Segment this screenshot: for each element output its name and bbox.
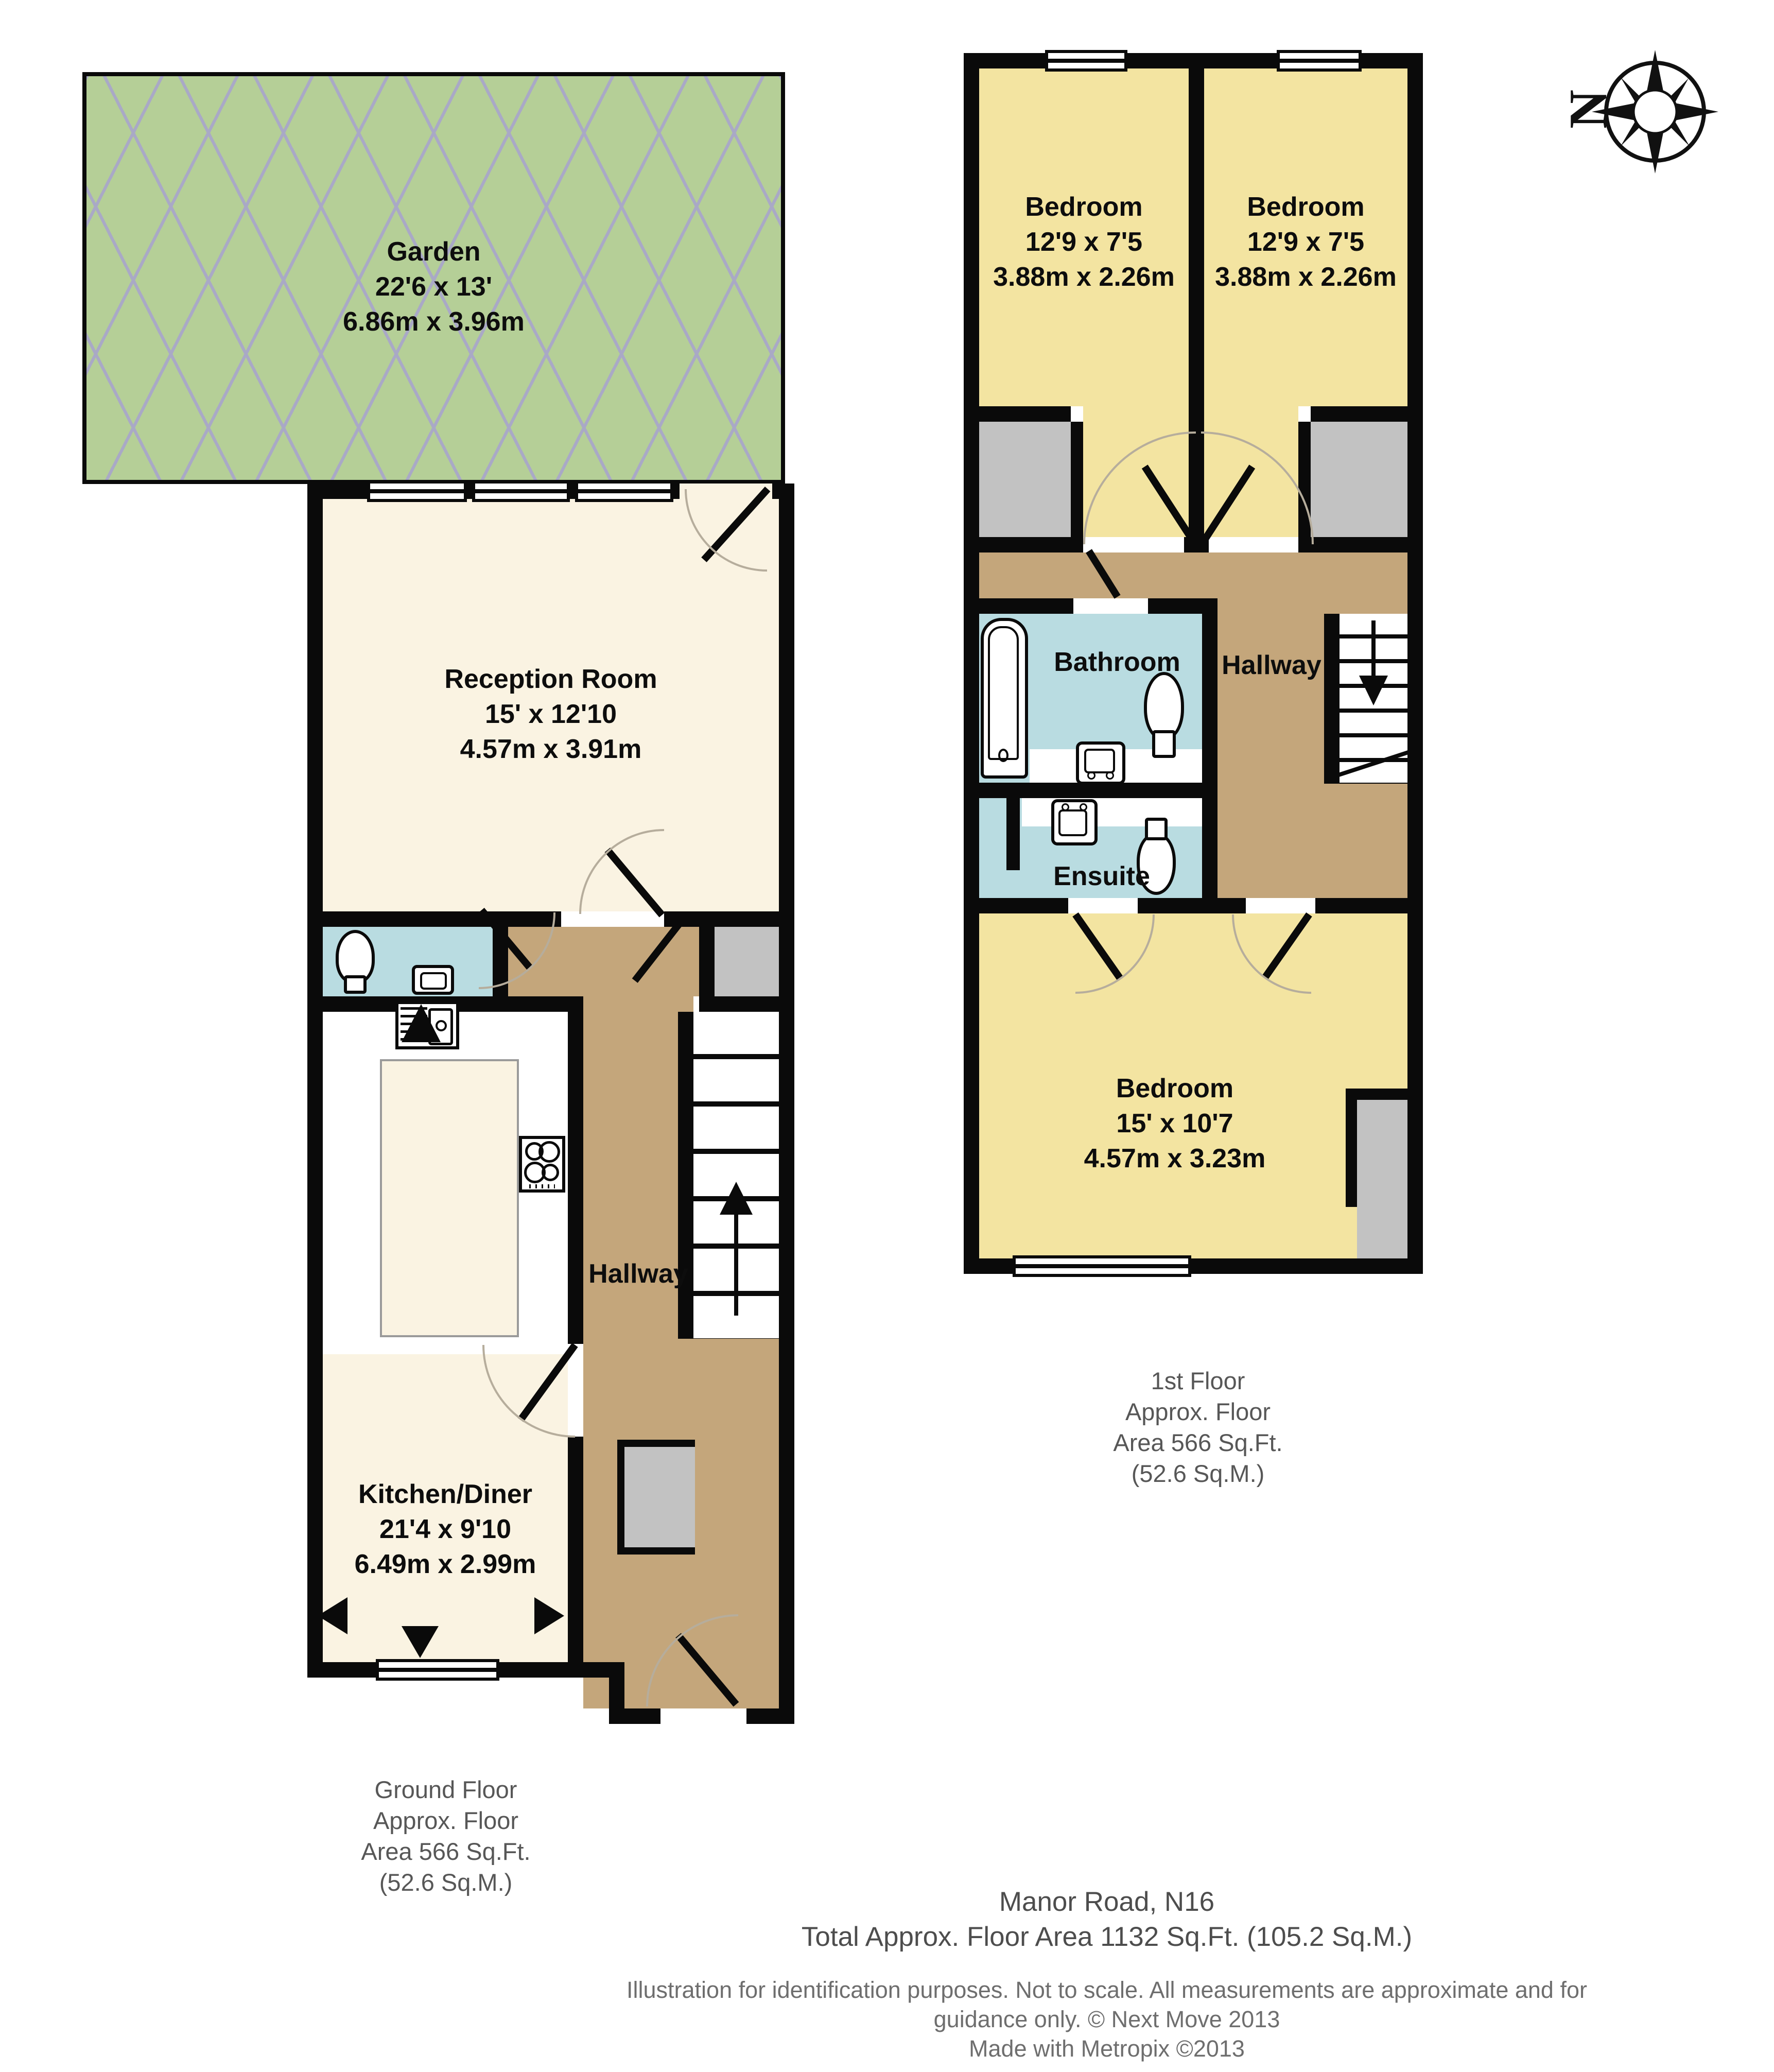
caption-line: 1st Floor — [992, 1366, 1404, 1396]
room-dims-imperial: 21'4 x 9'10 — [323, 1512, 568, 1547]
wall — [746, 1708, 794, 1724]
wall — [307, 1662, 376, 1678]
wall — [568, 1437, 583, 1662]
closet-entry-wall-left — [617, 1440, 624, 1555]
caption-line: Approx. Floor — [240, 1805, 652, 1836]
window — [472, 480, 570, 502]
hallway-first-label: Hallway — [1212, 648, 1331, 683]
bedroom-left-label: Bedroom 12'9 x 7'5 3.88m x 2.26m — [979, 189, 1189, 295]
wall — [1071, 422, 1083, 537]
room-name: Reception Room — [323, 662, 779, 697]
disclaimer-line: guidance only. © Next Move 2013 — [592, 2005, 1622, 2034]
hallway-first-mid — [1218, 598, 1324, 898]
room-name: Hallway — [583, 1256, 693, 1291]
stove-icon — [519, 1136, 565, 1193]
room-dims-imperial: 22'6 x 13' — [82, 269, 785, 304]
room-dims-imperial: 15' x 10'7 — [979, 1106, 1370, 1141]
stairs-up-arrow-icon — [720, 1182, 753, 1215]
wall — [1298, 537, 1407, 552]
kitchen-island — [380, 1059, 519, 1337]
caption-line: Ground Floor — [240, 1774, 652, 1805]
stairs-down-arrow-icon — [1359, 676, 1388, 705]
room-name: Garden — [82, 234, 785, 269]
window — [1045, 50, 1127, 72]
disclaimer-line: Made with Metropix ©2013 — [592, 2034, 1622, 2063]
bedroom-main-label: Bedroom 15' x 10'7 4.57m x 3.23m — [979, 1071, 1370, 1176]
caption-line: (52.6 Sq.M.) — [240, 1867, 652, 1898]
floorplan-canvas: Garden 22'6 x 13' 6.86m x 3.96m — [0, 0, 1774, 2072]
wall — [964, 598, 1073, 614]
wall — [979, 406, 1071, 422]
stairs-ground-arrow-stem — [734, 1213, 738, 1316]
closet-upper-right — [1311, 422, 1407, 537]
wall — [1202, 598, 1218, 798]
wall — [609, 1708, 660, 1724]
closet-entry-wall-top — [617, 1440, 695, 1447]
wall — [1407, 53, 1423, 1274]
wall — [699, 996, 779, 1012]
room-dims-metric: 4.57m x 3.23m — [979, 1141, 1370, 1176]
hallway-first-lower — [1324, 784, 1407, 898]
caption-line: Area 566 Sq.Ft. — [240, 1836, 652, 1867]
closet-top-right — [715, 927, 779, 996]
hallway-first-upper — [979, 552, 1407, 598]
opening-arrow-right-icon — [534, 1597, 564, 1634]
room-name: Bedroom — [979, 189, 1189, 225]
toilet-base — [344, 975, 367, 994]
room-dims-imperial: 12'9 x 7'5 — [1204, 225, 1407, 260]
reception-room-label: Reception Room 15' x 12'10 4.57m x 3.91m — [323, 662, 779, 767]
bathroom-label: Bathroom — [1032, 645, 1202, 680]
room-name: Ensuite — [1006, 859, 1197, 894]
wall — [568, 996, 583, 1344]
window-arrow-down-icon — [402, 1626, 439, 1658]
room-dims-metric: 3.88m x 2.26m — [1204, 260, 1407, 295]
room-name: Kitchen/Diner — [323, 1477, 568, 1512]
room-dims-imperial: 15' x 12'10 — [323, 697, 779, 732]
window — [575, 480, 673, 502]
room-name: Bedroom — [1204, 189, 1407, 225]
toilet-base — [1145, 818, 1168, 840]
kitchen-label: Kitchen/Diner 21'4 x 9'10 6.49m x 2.99m — [323, 1477, 568, 1582]
room-name: Hallway — [1212, 648, 1331, 683]
caption-line: Area 566 Sq.Ft. — [992, 1427, 1404, 1458]
room-dims-imperial: 12'9 x 7'5 — [979, 225, 1189, 260]
room-dims-metric: 3.88m x 2.26m — [979, 260, 1189, 295]
kitchen-sink-arrow-icon — [402, 1004, 441, 1042]
wall — [1324, 614, 1340, 784]
wall — [499, 1662, 624, 1678]
wall — [1315, 898, 1407, 913]
sink-icon — [412, 965, 454, 995]
closet-entry-wall-bottom — [617, 1547, 695, 1555]
bedroom-right-label: Bedroom 12'9 x 7'5 3.88m x 2.26m — [1204, 189, 1407, 295]
wall — [1202, 798, 1218, 898]
disclaimer-block: Illustration for identification purposes… — [592, 1975, 1622, 2063]
toilet-base — [1152, 730, 1176, 758]
ensuite-counter — [1022, 798, 1202, 826]
compass-north-label: N — [1560, 90, 1618, 129]
wall — [979, 537, 1083, 552]
opening-arrow-left-icon — [318, 1597, 347, 1634]
garden-label: Garden 22'6 x 13' 6.86m x 3.96m — [82, 234, 785, 339]
total-area-line: Total Approx. Floor Area 1132 Sq.Ft. (10… — [592, 1920, 1622, 1955]
hallway-first-stairtop — [1324, 598, 1407, 614]
wall — [609, 1678, 624, 1708]
stairs-first-arrow-stem — [1371, 620, 1376, 677]
room-dims-metric: 4.57m x 3.91m — [323, 732, 779, 767]
room-dims-metric: 6.49m x 2.99m — [323, 1547, 568, 1582]
window — [376, 1659, 499, 1681]
bathtub-icon — [981, 618, 1028, 779]
address-line: Manor Road, N16 — [592, 1885, 1622, 1920]
wall — [964, 783, 1218, 798]
window — [367, 480, 467, 502]
wall — [699, 927, 715, 996]
address-block: Manor Road, N16 Total Approx. Floor Area… — [592, 1885, 1622, 1955]
wall — [1311, 406, 1407, 422]
ground-floor-caption: Ground Floor Approx. Floor Area 566 Sq.F… — [240, 1774, 652, 1898]
hallway-ground-label: Hallway — [583, 1256, 693, 1291]
sink-icon — [1051, 799, 1098, 845]
first-floor-caption: 1st Floor Approx. Floor Area 566 Sq.Ft. … — [992, 1366, 1404, 1489]
wall — [1138, 898, 1246, 913]
room-name: Bedroom — [979, 1071, 1370, 1106]
room-name: Bathroom — [1032, 645, 1202, 680]
closet-entry — [624, 1447, 695, 1547]
wall — [307, 484, 323, 1678]
wall — [964, 53, 979, 1274]
wall — [964, 898, 1068, 913]
ensuite-label: Ensuite — [1006, 859, 1197, 894]
disclaimer-line: Illustration for identification purposes… — [592, 1975, 1622, 2005]
room-dims-metric: 6.86m x 3.96m — [82, 304, 785, 339]
closet-upper-left — [979, 422, 1071, 537]
window — [1277, 50, 1362, 72]
caption-line: (52.6 Sq.M.) — [992, 1458, 1404, 1489]
sink-icon — [1076, 741, 1125, 785]
compass-icon: N — [1560, 44, 1730, 183]
wall — [779, 484, 794, 1724]
caption-line: Approx. Floor — [992, 1396, 1404, 1427]
window — [1013, 1255, 1191, 1277]
